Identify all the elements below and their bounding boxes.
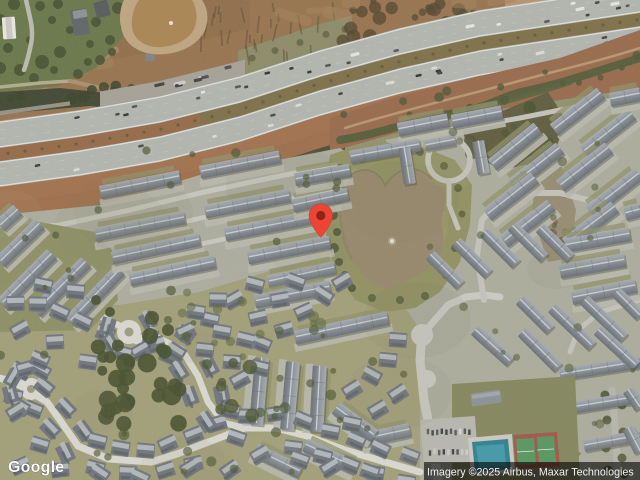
svg-text:Google: Google [8, 459, 64, 476]
svg-text:Imagery ©2025 Airbus, Maxar Te: Imagery ©2025 Airbus, Maxar Technologies [427, 467, 634, 479]
